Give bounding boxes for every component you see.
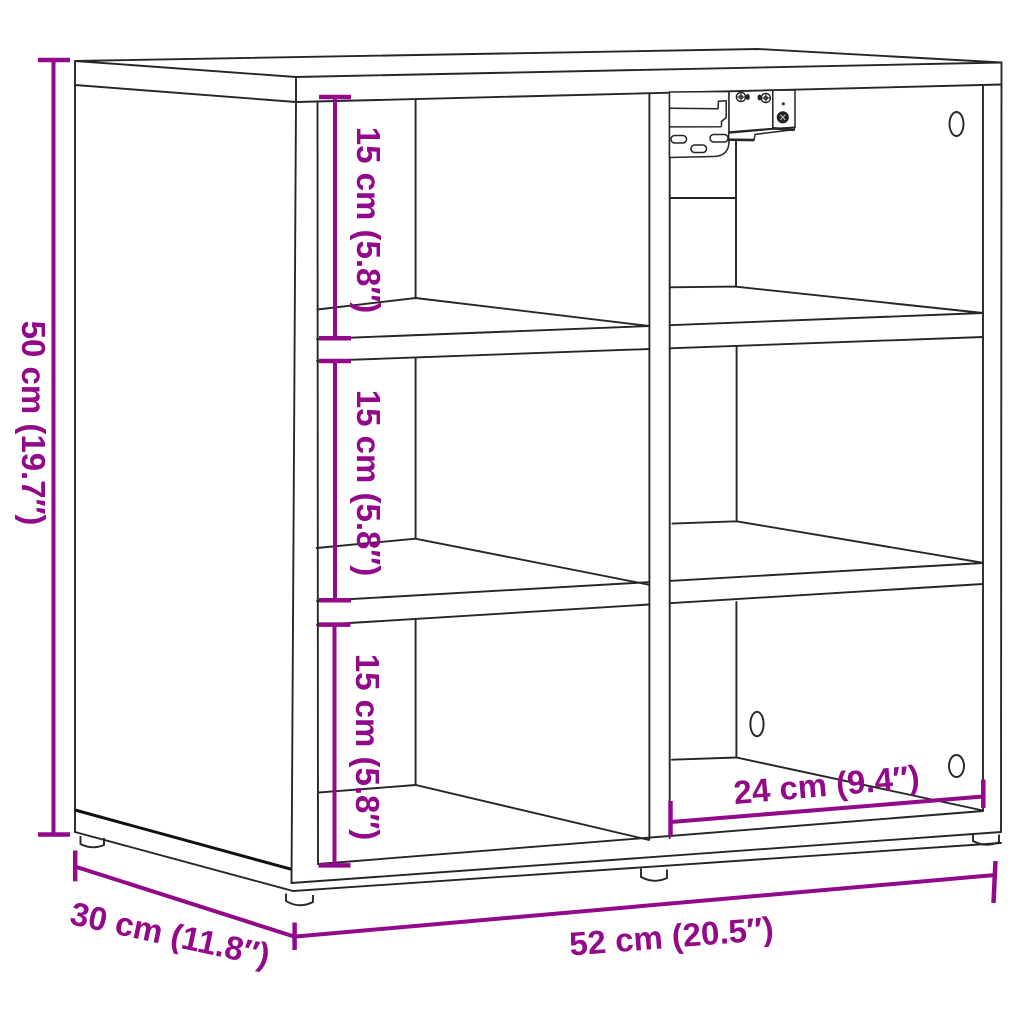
svg-text:15 cm (5.8″): 15 cm (5.8″) xyxy=(350,127,387,313)
svg-text:50 cm (19.7″): 50 cm (19.7″) xyxy=(15,321,52,526)
svg-text:15 cm (5.8″): 15 cm (5.8″) xyxy=(350,390,387,576)
svg-text:15 cm (5.8″): 15 cm (5.8″) xyxy=(349,654,386,840)
